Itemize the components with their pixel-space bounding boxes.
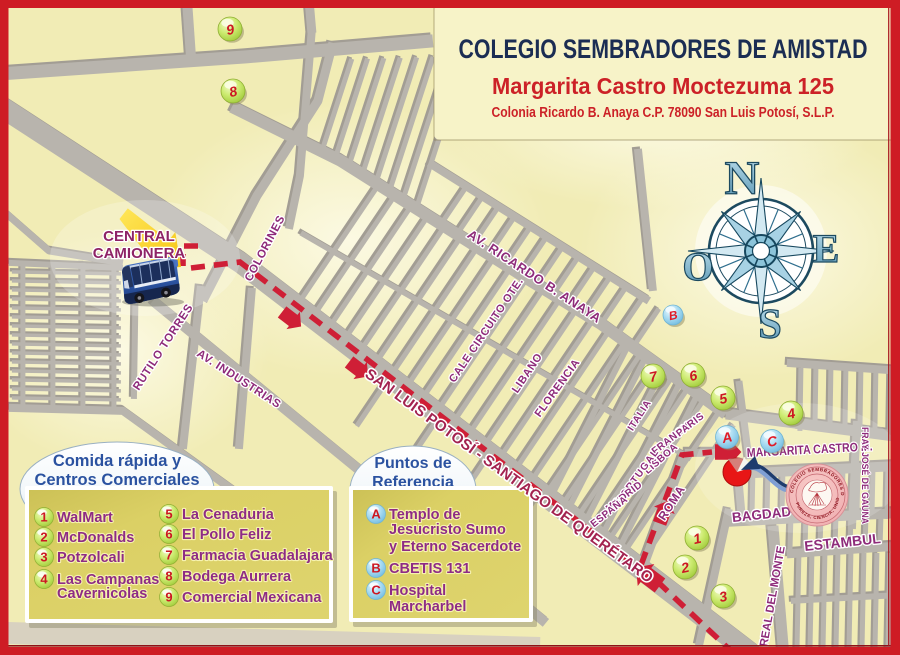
svg-text:8: 8 [165, 569, 172, 584]
svg-text:McDonalds: McDonalds [57, 530, 134, 546]
svg-text:S: S [758, 302, 781, 348]
svg-text:Potzolcali: Potzolcali [57, 550, 125, 566]
svg-text:Comercial Mexicana: Comercial Mexicana [182, 590, 322, 606]
svg-text:O: O [682, 244, 713, 289]
svg-text:Margarita Castro Moctezuma 125: Margarita Castro Moctezuma 125 [492, 73, 834, 99]
svg-text:COLEGIO SEMBRADORES DE AMISTAD: COLEGIO SEMBRADORES DE AMISTAD [459, 34, 868, 64]
svg-text:2: 2 [40, 530, 47, 545]
svg-text:Farmacia Guadalajara: Farmacia Guadalajara [182, 548, 334, 564]
svg-text:E: E [813, 226, 840, 271]
svg-text:Templo de: Templo de [389, 507, 460, 523]
svg-text:El Pollo Feliz: El Pollo Feliz [182, 527, 271, 543]
svg-text:Jesucristo Sumo: Jesucristo Sumo [389, 522, 506, 538]
svg-text:CAMIONERA: CAMIONERA [93, 245, 186, 262]
svg-text:Puntos de: Puntos de [374, 455, 451, 472]
svg-text:6: 6 [165, 527, 172, 542]
svg-text:B: B [371, 561, 380, 576]
svg-text:Hospital: Hospital [389, 583, 446, 599]
svg-text:A: A [371, 507, 381, 522]
svg-text:Marcharbel: Marcharbel [389, 599, 466, 615]
svg-text:Bodega Aurrera: Bodega Aurrera [182, 569, 292, 585]
svg-text:9: 9 [165, 590, 172, 605]
svg-text:La Cenaduria: La Cenaduria [182, 507, 275, 523]
svg-text:CBETIS 131: CBETIS 131 [389, 561, 470, 577]
svg-text:N: N [725, 152, 760, 205]
svg-text:3: 3 [40, 550, 47, 565]
svg-text:FRAY JOSÉ DE GAUNA: FRAY JOSÉ DE GAUNA [859, 427, 870, 524]
svg-text:WalMart: WalMart [57, 510, 113, 526]
svg-text:1: 1 [40, 510, 47, 525]
svg-text:Colonia Ricardo B. Anaya C.P.: Colonia Ricardo B. Anaya C.P. 78090 San … [492, 105, 835, 121]
svg-text:7: 7 [165, 548, 172, 563]
svg-text:Comida rápida y: Comida rápida y [53, 452, 182, 470]
svg-text:4: 4 [40, 572, 48, 587]
svg-text:Cavernicolas: Cavernicolas [57, 586, 147, 602]
svg-text:y Eterno Sacerdote: y Eterno Sacerdote [389, 539, 521, 555]
svg-text:CENTRAL: CENTRAL [103, 228, 175, 245]
svg-text:C: C [371, 583, 381, 598]
svg-text:5: 5 [165, 507, 172, 522]
